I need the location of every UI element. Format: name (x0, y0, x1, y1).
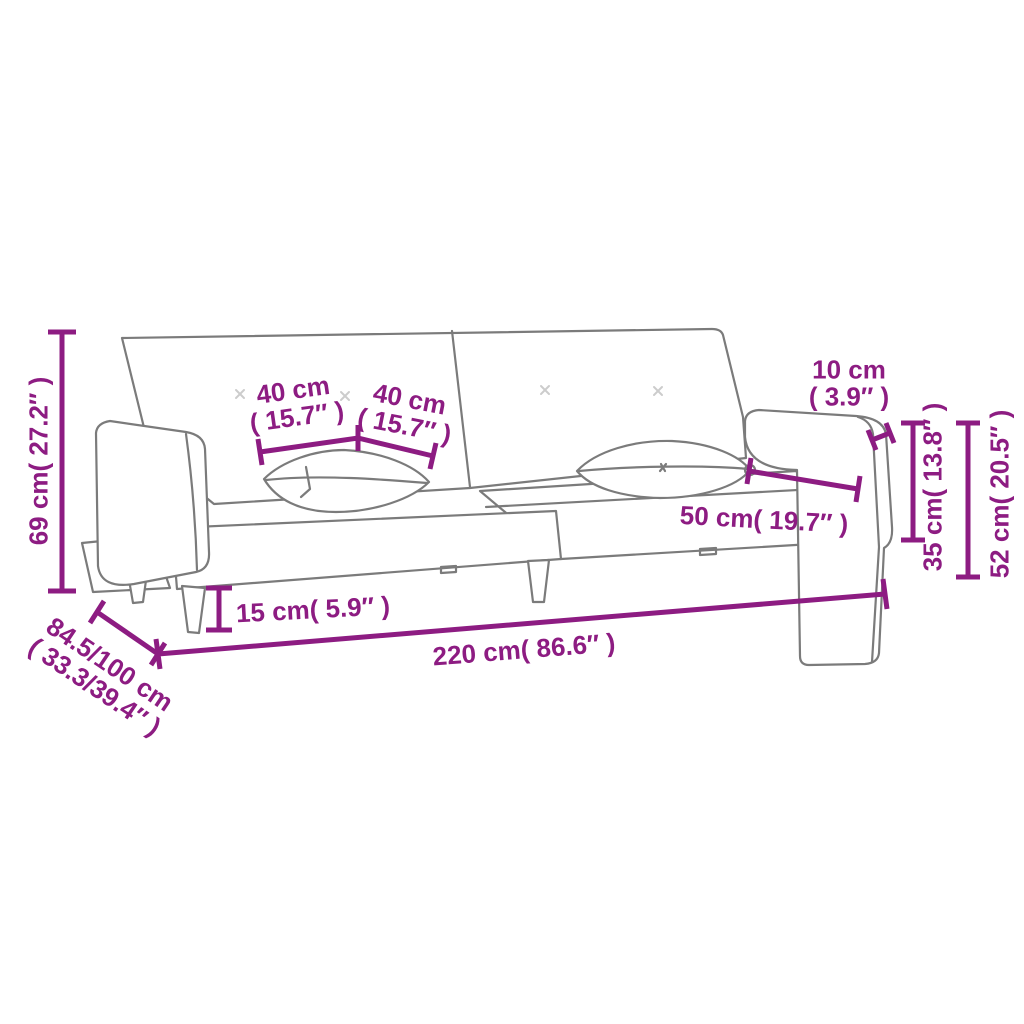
height-dimension-label: 69 cm( 27.2″ ) (25, 377, 52, 546)
armrest-width-inch: ( 3.9″ ) (809, 384, 889, 411)
dimension-diagram: 69 cm( 27.2″ ) 84.5/100 cm ( 33.3/39.4″ … (0, 0, 1024, 1024)
armrest-height-dimension-label: 35 cm( 13.8″ ) (919, 403, 946, 572)
left-armrest (96, 421, 209, 585)
sofa-sketch (0, 0, 1024, 1024)
dimension-line-leg-height (206, 588, 232, 630)
armrest-width-dimension-label: 10 cm ( 3.9″ ) (809, 357, 889, 412)
side-height-dimension-label: 52 cm( 20.5″ ) (986, 410, 1013, 579)
dimension-line-side-height (956, 423, 980, 577)
armrest-width-cm: 10 cm (809, 357, 889, 384)
